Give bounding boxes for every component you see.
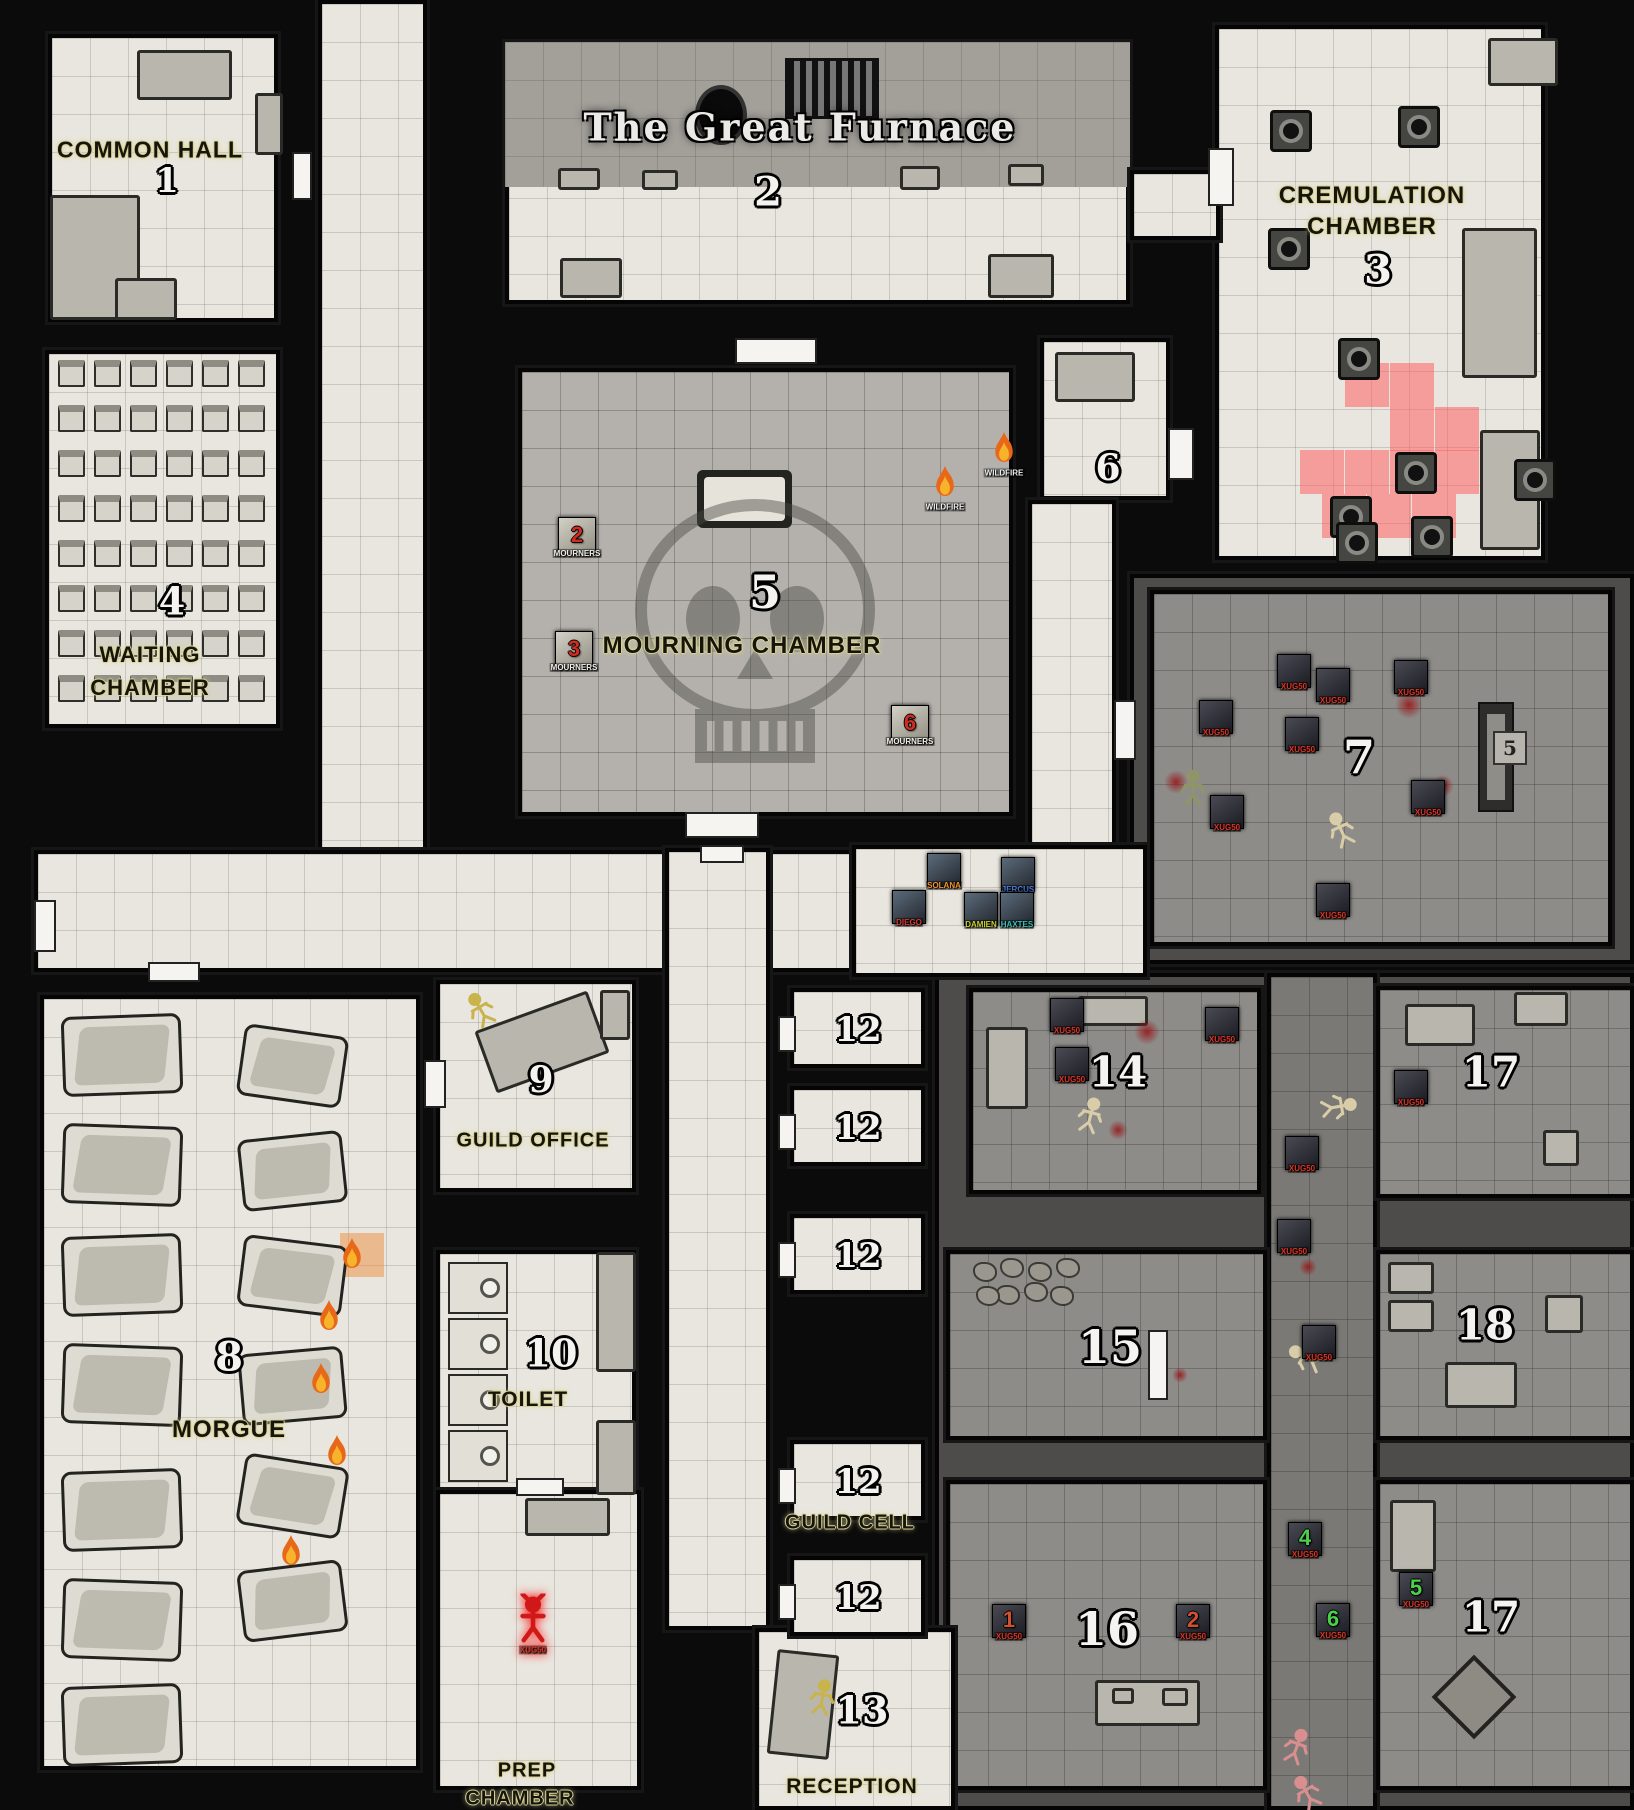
token-diego[interactable]: DIEGO [892, 890, 926, 924]
flame-token[interactable] [314, 1299, 344, 1342]
furniture [1543, 1130, 1579, 1166]
blood-splat [1299, 1258, 1317, 1276]
cremation-furnace-icon [1398, 106, 1440, 148]
highlight-cell [1390, 407, 1434, 451]
room-number-6: 6 [1095, 447, 1120, 489]
room-number-10: 10 [525, 1331, 578, 1376]
corridor-left [318, 0, 427, 852]
token-haxtes[interactable]: HAXTES [1000, 892, 1034, 926]
cremation-furnace-icon [1411, 516, 1453, 558]
token-xug50[interactable]: XUG50 [1316, 668, 1350, 702]
chair-icon [166, 495, 193, 522]
door[interactable] [1208, 148, 1234, 206]
door[interactable] [1148, 1330, 1168, 1400]
furniture [1162, 1688, 1188, 1706]
token-xug50-1[interactable]: 1XUG50 [992, 1604, 1026, 1638]
furniture [525, 1498, 610, 1536]
furniture [600, 990, 630, 1040]
chair-icon [58, 585, 85, 612]
furniture [596, 1420, 636, 1495]
label-chamber-12: CHAMBER [465, 1788, 574, 1810]
chair-icon [94, 405, 121, 432]
token-xug50[interactable]: XUG50 [1316, 883, 1350, 917]
token-xug50[interactable]: XUG50 [1277, 654, 1311, 688]
room-7 [1150, 590, 1612, 946]
token-xug50-5[interactable]: 5XUG50 [1399, 1572, 1433, 1606]
blood-splat [1108, 1120, 1128, 1140]
room-number-12: 12 [834, 1462, 881, 1502]
token-xug50[interactable]: XUG50 [1285, 1136, 1319, 1170]
room-number-12: 12 [834, 1010, 881, 1050]
chair-icon [238, 540, 265, 567]
chair-icon [58, 540, 85, 567]
furniture [1008, 164, 1044, 186]
highlight-cell [1435, 450, 1479, 494]
toilet-stall [448, 1262, 508, 1314]
furniture [1462, 228, 1537, 378]
highlight-cell [1390, 363, 1434, 407]
chair-icon [202, 540, 229, 567]
label-the-great-furnace: The Great Furnace [584, 105, 1017, 150]
token-mourner-6[interactable]: 6MOURNERS [891, 705, 929, 743]
furniture [986, 1027, 1028, 1109]
morgue-slab [236, 1023, 350, 1109]
flame-token[interactable] [322, 1434, 352, 1477]
label-guild-cell-9: GUILD CELL [785, 1512, 915, 1535]
door[interactable] [1114, 700, 1136, 760]
label-common-hall-0: COMMON HALL [57, 137, 243, 164]
furniture [560, 258, 622, 298]
chair-icon [130, 585, 157, 612]
toilet-stall [448, 1430, 508, 1482]
token-xug50[interactable]: XUG50 [1394, 1070, 1428, 1104]
room-number-1: 1 [155, 161, 179, 201]
token-xug50-4[interactable]: 4XUG50 [1288, 1522, 1322, 1556]
room-number-13: 13 [836, 1688, 889, 1733]
room-number-8: 8 [215, 1334, 243, 1381]
skeleton-corpse-icon [1310, 1083, 1361, 1130]
vtt-map-canvas[interactable]: XUG50WILDFIREWILDFIRESOLANAJERCUSDIEGODA… [0, 0, 1634, 1810]
token-xug50[interactable]: XUG50 [1394, 660, 1428, 694]
chair-icon [238, 360, 265, 387]
chair-icon [58, 405, 85, 432]
door[interactable] [148, 962, 200, 982]
furniture [1488, 38, 1558, 86]
door[interactable] [34, 900, 56, 952]
chair-icon [94, 540, 121, 567]
room-number-14: 14 [1089, 1048, 1147, 1097]
furniture [642, 170, 678, 190]
chair-icon [130, 540, 157, 567]
door[interactable] [424, 1060, 446, 1108]
chair-icon [238, 405, 265, 432]
chair-icon [130, 360, 157, 387]
chair-icon [58, 450, 85, 477]
room-number-5: 5 [749, 565, 781, 619]
demon-figure-icon[interactable]: XUG50 [510, 1594, 556, 1651]
chair-icon [94, 360, 121, 387]
chair-icon [94, 495, 121, 522]
furniture [115, 278, 177, 320]
label-toilet-8: TOILET [488, 1388, 568, 1412]
morgue-slab [61, 1578, 184, 1662]
chair-icon [130, 405, 157, 432]
door[interactable] [685, 812, 759, 838]
room-number-15: 15 [1078, 1320, 1142, 1374]
chair-icon [166, 360, 193, 387]
token-xug50-6[interactable]: 6XUG50 [1316, 1603, 1350, 1637]
chair-icon [202, 585, 229, 612]
flame-token[interactable]: WILDFIRE [989, 431, 1019, 474]
highlight-cell [1300, 450, 1344, 494]
token-xug50[interactable]: XUG50 [1205, 1007, 1239, 1041]
furniture [1388, 1300, 1434, 1332]
door[interactable] [778, 1242, 796, 1278]
blood-splat [1134, 1019, 1160, 1045]
morgue-slab [61, 1233, 184, 1317]
token-xug50[interactable]: XUG50 [1199, 700, 1233, 734]
cremation-furnace-icon [1270, 110, 1312, 152]
furniture [900, 166, 940, 190]
rubble-icon [1050, 1286, 1074, 1306]
furniture [1514, 992, 1568, 1026]
label-guild-office-7: GUILD OFFICE [456, 1130, 609, 1153]
label-chamber-2: CHAMBER [1307, 213, 1437, 241]
chair-icon [238, 495, 265, 522]
chair-icon [202, 450, 229, 477]
room-number-12: 12 [834, 1578, 881, 1618]
cremation-furnace-icon [1268, 228, 1310, 270]
blood-splat [1172, 1367, 1188, 1383]
door[interactable] [1168, 428, 1194, 480]
morgue-slab [61, 1468, 184, 1552]
morgue-slab [61, 1343, 184, 1427]
chair-icon [166, 405, 193, 432]
chair-icon [58, 360, 85, 387]
chair-icon [94, 585, 121, 612]
chair-icon [202, 495, 229, 522]
furniture [1055, 352, 1135, 402]
room-number-3: 3 [1364, 247, 1392, 294]
rubble-icon [973, 1262, 997, 1282]
highlight-cell [1435, 407, 1479, 451]
door[interactable] [778, 1468, 796, 1504]
chair-icon [238, 630, 265, 657]
token-xug50[interactable]: XUG50 [1411, 780, 1445, 814]
cremation-furnace-icon [1514, 459, 1556, 501]
chair-icon [58, 675, 85, 702]
token-mourner-2[interactable]: 2MOURNERS [558, 517, 596, 555]
label-waiting-3: WAITING [99, 642, 200, 668]
furniture [596, 1252, 636, 1372]
furniture [1445, 1362, 1517, 1408]
room-number-17: 17 [1462, 1593, 1520, 1642]
chair-icon [202, 360, 229, 387]
room-number-4: 4 [159, 579, 185, 624]
token-solana[interactable]: SOLANA [927, 853, 961, 887]
door[interactable] [735, 338, 817, 364]
furniture [558, 168, 600, 190]
furniture [255, 93, 283, 155]
label-chamber-4: CHAMBER [90, 675, 209, 701]
room-number-12: 12 [834, 1108, 881, 1148]
label-morgue-6: MORGUE [172, 1416, 286, 1444]
label-mourning-chamber-5: MOURNING CHAMBER [603, 632, 882, 660]
rubble-icon [1028, 1262, 1052, 1282]
door[interactable] [778, 1114, 796, 1150]
chair-icon [94, 450, 121, 477]
rubble-icon [1056, 1258, 1080, 1278]
chair-icon [238, 675, 265, 702]
door[interactable] [516, 1478, 564, 1496]
corridor-link-2-3 [1130, 170, 1220, 240]
zombie-figure-icon [1173, 769, 1213, 814]
loot-marker[interactable]: 5 [1493, 731, 1527, 765]
furniture [1112, 1688, 1134, 1704]
corridor-center [665, 848, 770, 1630]
chair-icon [166, 450, 193, 477]
label-prep-11: PREP [498, 1760, 556, 1783]
furniture [1545, 1295, 1583, 1333]
cremation-furnace-icon [1338, 338, 1380, 380]
cremation-furnace-icon [1395, 452, 1437, 494]
furniture [988, 254, 1054, 298]
token-xug50-2[interactable]: 2XUG50 [1176, 1604, 1210, 1638]
door[interactable] [700, 845, 744, 863]
flame-token[interactable] [337, 1237, 367, 1280]
room-number-16: 16 [1075, 1602, 1139, 1656]
chair-icon [58, 495, 85, 522]
token-jercus[interactable]: JERCUS [1001, 857, 1035, 891]
chair-icon [202, 405, 229, 432]
furniture [1388, 1262, 1434, 1294]
chair-icon [130, 450, 157, 477]
morgue-slab [237, 1130, 349, 1213]
furniture [137, 50, 232, 100]
room-number-7: 7 [1343, 730, 1375, 784]
rubble-icon [976, 1286, 1000, 1306]
corridor-east [1028, 500, 1116, 848]
chair-icon [58, 630, 85, 657]
room-number-9: 9 [528, 1059, 553, 1101]
cremation-furnace-icon [1336, 522, 1378, 564]
chair-icon [238, 585, 265, 612]
morgue-slab [61, 1123, 184, 1207]
label-cremulation-1: CREMULATION [1279, 182, 1466, 210]
token-damien[interactable]: DAMIEN [964, 892, 998, 926]
door[interactable] [292, 152, 312, 200]
flame-token[interactable]: WILDFIRE [930, 465, 960, 508]
token-xug50[interactable]: XUG50 [1285, 717, 1319, 751]
token-xug50[interactable]: XUG50 [1302, 1325, 1336, 1359]
room-number-12: 12 [834, 1236, 881, 1276]
token-xug50[interactable]: XUG50 [1277, 1219, 1311, 1253]
room-number-2: 2 [754, 169, 782, 216]
chair-icon [166, 540, 193, 567]
morgue-slab [61, 1683, 184, 1767]
room-number-17: 17 [1462, 1048, 1520, 1097]
furniture [1390, 1500, 1436, 1572]
door[interactable] [778, 1016, 796, 1052]
rubble-icon [1000, 1258, 1024, 1278]
highlight-cell [1345, 450, 1389, 494]
toilet-stall [448, 1318, 508, 1370]
token-xug50[interactable]: XUG50 [1050, 998, 1084, 1032]
chair-icon [202, 630, 229, 657]
rubble-icon [1024, 1282, 1048, 1302]
chair-icon [238, 450, 265, 477]
token-xug50[interactable]: XUG50 [1055, 1047, 1089, 1081]
morgue-slab [61, 1013, 184, 1097]
furniture [1405, 1004, 1475, 1046]
token-mourner-3[interactable]: 3MOURNERS [555, 631, 593, 669]
label-reception-10: RECEPTION [786, 1775, 918, 1799]
door[interactable] [778, 1584, 796, 1620]
flame-token[interactable] [306, 1362, 336, 1405]
room-number-18: 18 [1456, 1301, 1514, 1350]
token-xug50[interactable]: XUG50 [1210, 795, 1244, 829]
chair-icon [130, 495, 157, 522]
flame-token[interactable] [276, 1534, 306, 1577]
